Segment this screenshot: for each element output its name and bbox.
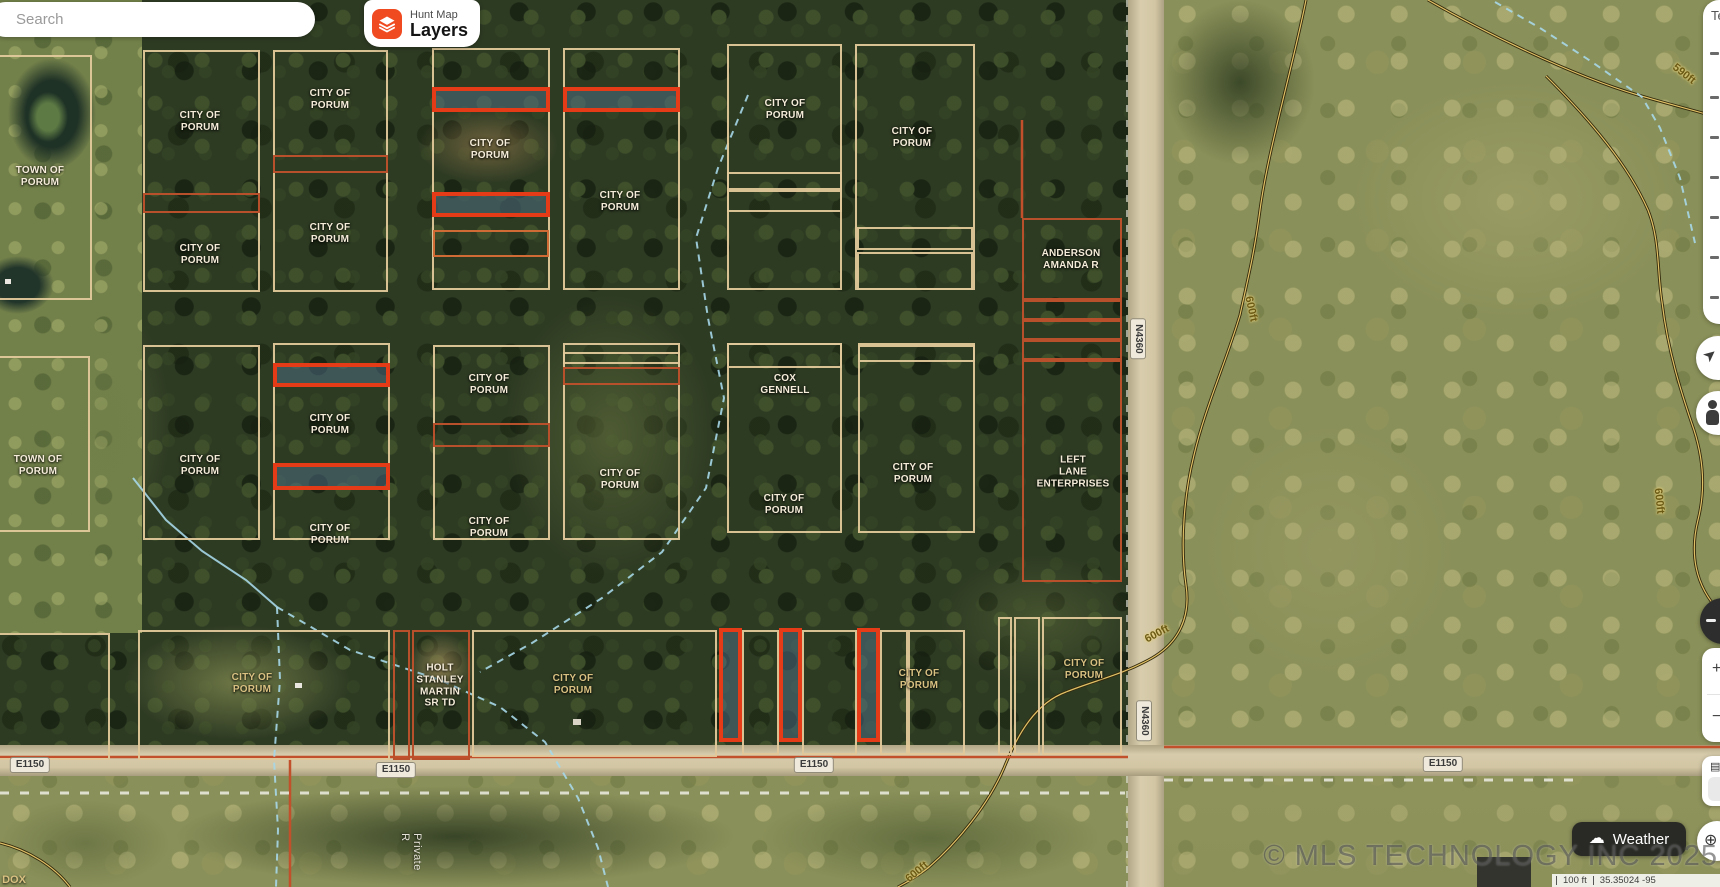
- parcel-tan[interactable]: [908, 630, 965, 755]
- search-bar[interactable]: [0, 2, 315, 37]
- parcel-rust[interactable]: [1022, 340, 1122, 360]
- parcel-label: HOLT STANLEY MARTIN SR TD: [416, 662, 463, 709]
- search-input[interactable]: [14, 10, 288, 29]
- zoom-out-button[interactable]: −: [1712, 708, 1720, 726]
- parcel-tan[interactable]: [802, 630, 857, 755]
- side-tool-panel[interactable]: Te: [1703, 0, 1720, 324]
- parcel-tan[interactable]: [727, 343, 842, 368]
- parcel-tan[interactable]: [563, 48, 680, 290]
- parcel-red[interactable]: [273, 463, 390, 490]
- panel-icon: [1710, 136, 1719, 139]
- panel-icon: [1710, 176, 1719, 179]
- scale-bar: 100 ft 35.35024 -95: [1552, 874, 1720, 887]
- terrain-patch: [1165, 0, 1315, 165]
- parcel-red[interactable]: [432, 87, 550, 112]
- parcel-red[interactable]: [779, 628, 802, 742]
- terrain-patch: [760, 790, 1100, 887]
- parcel-red[interactable]: [719, 628, 742, 742]
- parcel-label: CITY OF PORUM: [892, 126, 933, 150]
- parcel-tan[interactable]: [742, 630, 779, 755]
- parcel-label: CITY OF PORUM: [180, 110, 221, 134]
- app-name: Hunt Map: [410, 9, 468, 21]
- parcel-tan[interactable]: [857, 252, 973, 290]
- scale-tick: [1556, 876, 1557, 885]
- map-text-label: Private R: [399, 833, 423, 871]
- parcel-label: CITY OF PORUM: [600, 468, 641, 492]
- parcel-tan[interactable]: [727, 190, 842, 212]
- road-label: E1150: [376, 762, 416, 778]
- parcel-label: CITY OF PORUM: [180, 243, 221, 267]
- compass-needle-icon: [1706, 619, 1716, 622]
- parcel-label: CITY OF PORUM: [893, 462, 934, 486]
- parcel-tan[interactable]: [858, 343, 975, 533]
- road-label: N4360: [1136, 700, 1152, 741]
- parcel-red[interactable]: [273, 363, 390, 387]
- parcel-tan[interactable]: [0, 633, 110, 760]
- parcel-label: CITY OF PORUM: [899, 668, 940, 692]
- parcel-tan[interactable]: [858, 345, 975, 362]
- parcel-rust[interactable]: [433, 423, 550, 447]
- road-label: N4360: [1130, 318, 1146, 359]
- parcel-label: CITY OF PORUM: [469, 516, 510, 540]
- parcel-label: CITY OF PORUM: [469, 373, 510, 397]
- parcel-tan[interactable]: [727, 44, 842, 290]
- divider: [1707, 694, 1720, 695]
- terrain-patch: [175, 786, 735, 887]
- parcel-label: CITY OF PORUM: [470, 138, 511, 162]
- layers-button-label: Layers: [410, 21, 468, 39]
- road-label: E1150: [1423, 756, 1463, 772]
- parcel-label: LEFT LANE ENTERPRISES: [1037, 454, 1110, 489]
- scale-distance: 100 ft: [1563, 875, 1587, 886]
- parcel-label: CITY OF PORUM: [310, 523, 351, 547]
- parcel-label: COX GENNELL: [760, 373, 809, 397]
- parcel-tan[interactable]: [472, 630, 717, 757]
- panel-icon: [1710, 96, 1719, 99]
- layers-button[interactable]: Hunt Map Layers: [364, 0, 480, 47]
- layers-icon: [372, 9, 402, 39]
- scale-tick: [1593, 876, 1594, 885]
- parcel-tan[interactable]: [143, 345, 260, 540]
- basemap-panel[interactable]: ▤: [1702, 756, 1720, 806]
- terrain-patch: [1200, 420, 1460, 680]
- parcel-tan[interactable]: [1042, 617, 1122, 755]
- parcel-label: CITY OF PORUM: [765, 98, 806, 122]
- parcel-rust[interactable]: [393, 630, 410, 760]
- parcel-rust[interactable]: [143, 193, 260, 213]
- road-label: E1150: [10, 757, 50, 773]
- parcel-label: CITY OF PORUM: [600, 190, 641, 214]
- streetview-person-icon: [1706, 410, 1719, 425]
- parcel-label: ANDERSON AMANDA R: [1042, 248, 1101, 272]
- parcel-label: CITY OF PORUM: [310, 222, 351, 246]
- parcel-label: CITY OF PORUM: [180, 454, 221, 478]
- hunt-map-app: TOWN OF PORUMCITY OF PORUMCITY OF PORUMC…: [0, 0, 1720, 887]
- parcel-tan[interactable]: [857, 227, 973, 250]
- parcel-red[interactable]: [432, 192, 550, 217]
- parcel-label: CITY OF PORUM: [310, 88, 351, 112]
- parcel-label: TOWN OF PORUM: [16, 165, 64, 189]
- parcel-red[interactable]: [857, 628, 880, 742]
- terrain-patch: [1350, 80, 1680, 320]
- contour-label: 600ft: [1652, 488, 1667, 515]
- parcel-tan[interactable]: [998, 617, 1012, 755]
- parcel-tan[interactable]: [880, 630, 908, 755]
- parcel-rust[interactable]: [273, 155, 388, 173]
- streetview-person-icon: [1708, 400, 1717, 409]
- parcel-label: CITY OF PORUM: [1064, 658, 1105, 682]
- panel-icon: [1710, 256, 1719, 259]
- panel-icon: [1710, 216, 1719, 219]
- panel-text-fragment: Te: [1711, 8, 1720, 23]
- parcel-label: CITY OF PORUM: [310, 413, 351, 437]
- parcel-tan[interactable]: [1014, 617, 1040, 755]
- basemap-thumbnail-button[interactable]: [1708, 777, 1720, 801]
- parcel-tan[interactable]: [727, 172, 842, 190]
- basemap-cards-icon: ▤: [1710, 760, 1720, 773]
- parcel-rust[interactable]: [1022, 320, 1122, 340]
- parcel-rust[interactable]: [563, 367, 680, 385]
- parcel-label: TOWN OF PORUM: [14, 454, 62, 478]
- zoom-in-button[interactable]: +: [1712, 660, 1720, 678]
- panel-icon: [1710, 296, 1719, 299]
- parcel-orange[interactable]: [433, 230, 549, 257]
- panel-icon: [1710, 52, 1719, 55]
- parcel-tan[interactable]: [563, 352, 680, 364]
- parcel-label: CITY OF PORUM: [232, 672, 273, 696]
- copyright-notice: © MLS TECHNOLOGY INC 2025: [1263, 840, 1718, 873]
- parcel-label: CITY OF PORUM: [764, 493, 805, 517]
- location-arrow-icon: ➤: [1700, 346, 1720, 367]
- parcel-label: CITY OF PORUM: [553, 673, 594, 697]
- parcel-rust[interactable]: [1022, 300, 1122, 320]
- parcel-tan[interactable]: [0, 356, 90, 532]
- parcel-red[interactable]: [563, 87, 680, 112]
- map-text-label: DOX: [2, 874, 26, 886]
- road-label: E1150: [794, 757, 834, 773]
- cursor-coordinates: 35.35024 -95: [1600, 875, 1656, 886]
- zoom-control-panel: + −: [1702, 648, 1720, 742]
